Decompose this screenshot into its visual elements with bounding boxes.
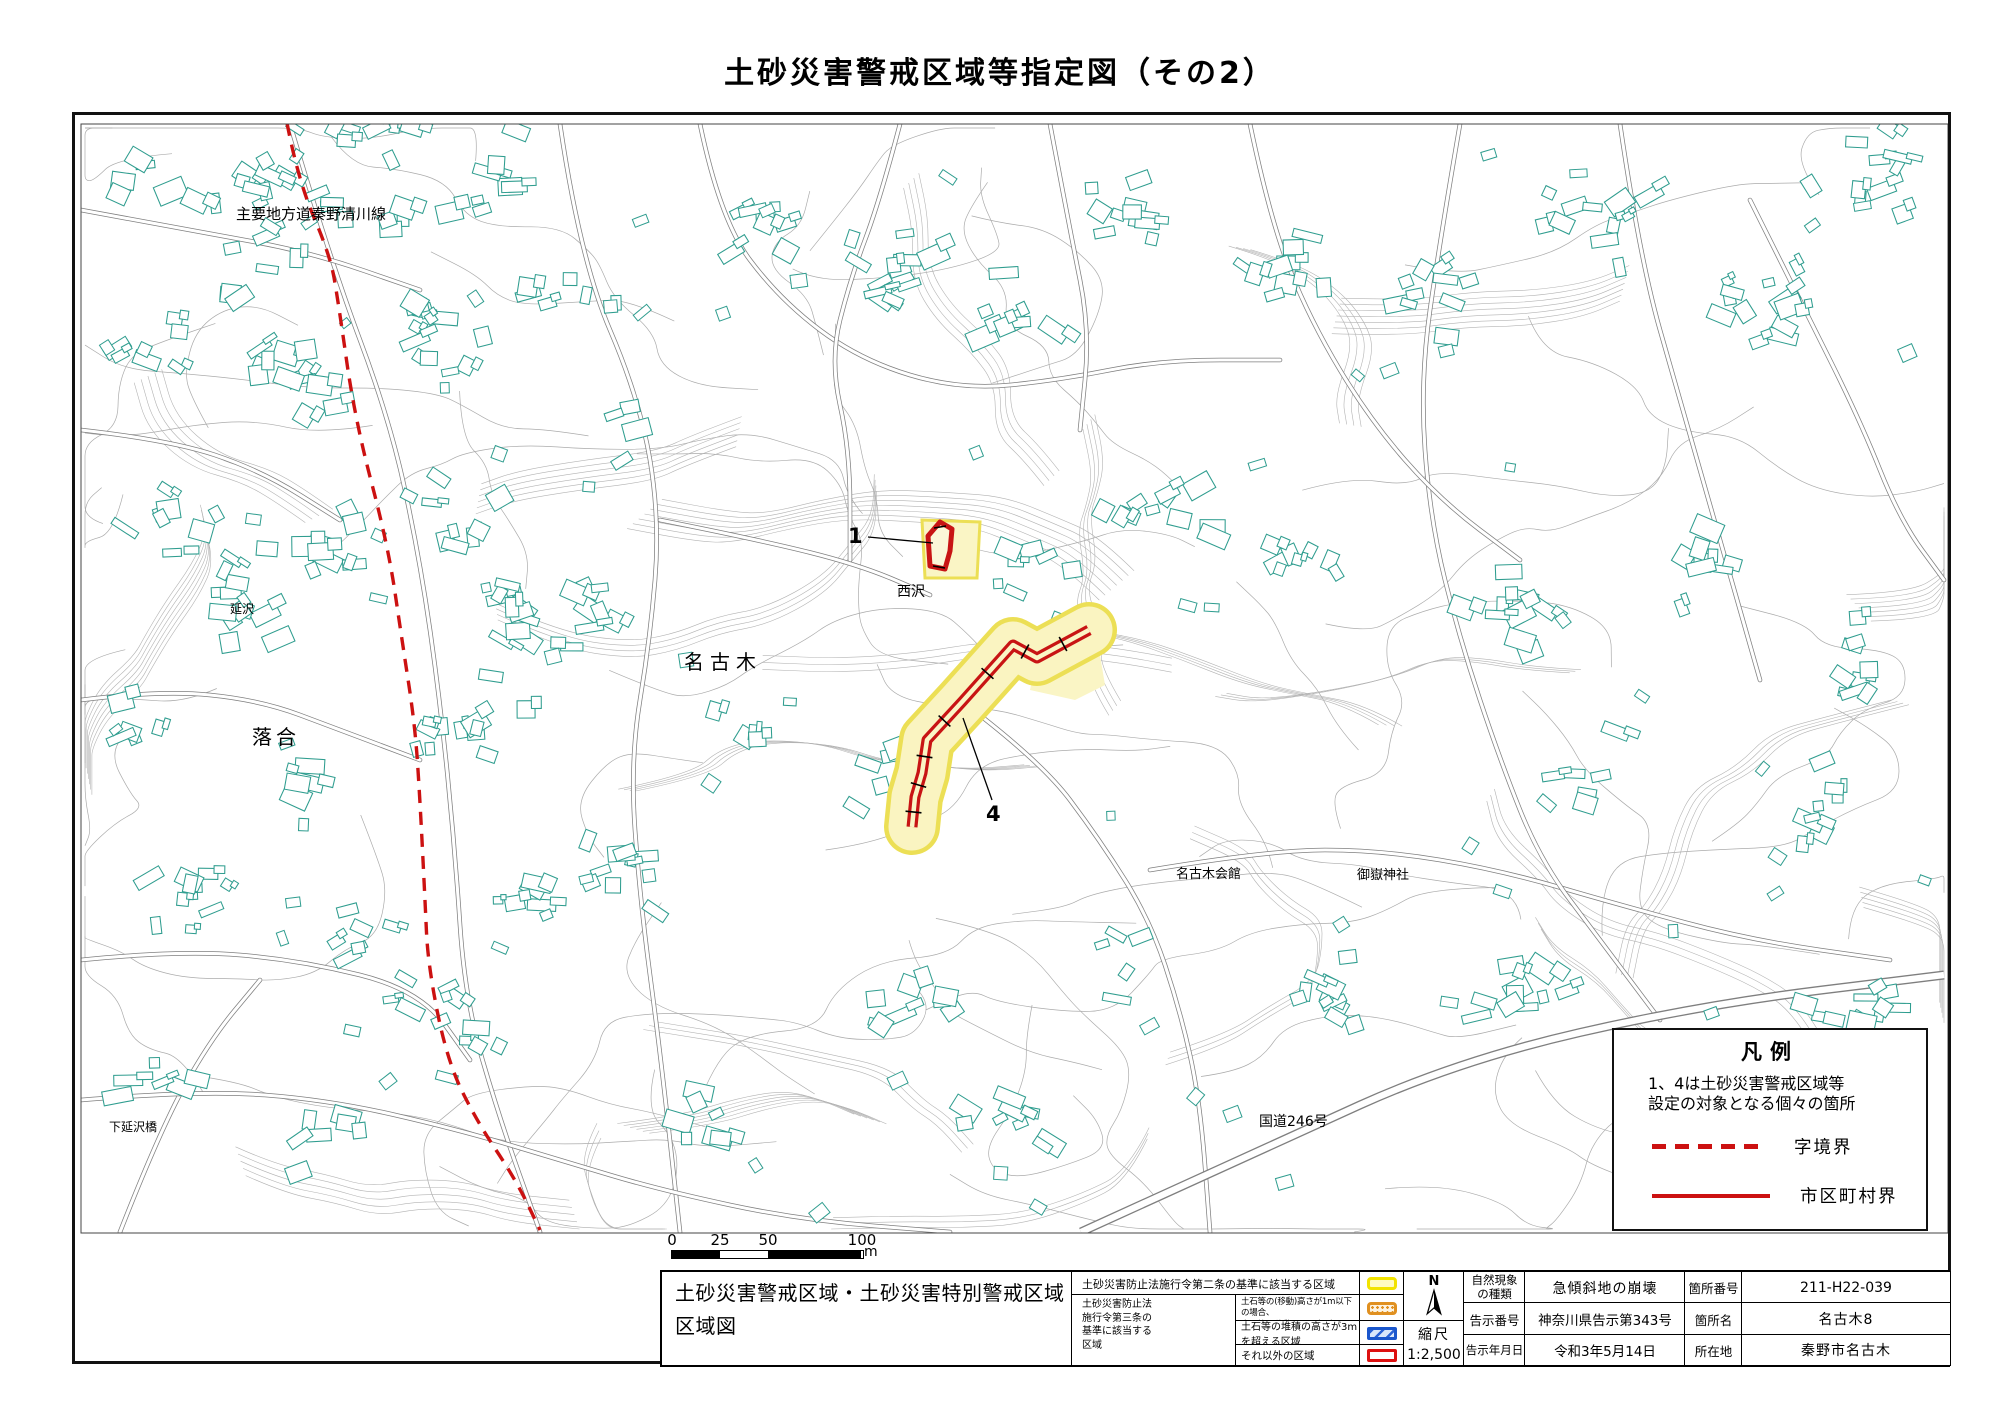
scale-label: 縮尺: [1418, 1324, 1450, 1344]
legend-note-line2: 設定の対象となる個々の箇所: [1648, 1094, 1926, 1114]
page: 土砂災害警戒区域等指定図（その2） 主要地方道秦野清川線 延沢 落合 名古木 西…: [0, 0, 2000, 1414]
zone-legend-row4: それ以外の区域: [1235, 1344, 1361, 1366]
info-table: 土砂災害警戒区域・土砂災害特別警戒区域 区域図 土砂災害防止法施行令第二条の基準…: [660, 1270, 1950, 1367]
scalebar-segment: [672, 1251, 720, 1258]
map-label-ochiai: 落合: [252, 721, 300, 750]
map-label-naganuki-kaikan: 名古木会館: [1176, 863, 1241, 882]
blue-hatched-zone-swatch: [1367, 1327, 1397, 1340]
scalebar: [671, 1250, 864, 1259]
map-label-mitake-jinja: 御嶽神社: [1357, 864, 1409, 883]
group-label-line: 区域: [1082, 1339, 1152, 1353]
detail-label: 告示年月日: [1463, 1334, 1526, 1366]
zone-legend-group-label: 土砂災害防止法 施行令第三条の 基準に該当する 区域: [1071, 1294, 1236, 1366]
detail-label: 告示番号: [1463, 1302, 1526, 1336]
info-doc-title-line2: 区域図: [675, 1313, 737, 1339]
north-label: N: [1429, 1275, 1440, 1288]
detail-label: 所在地: [1684, 1334, 1743, 1366]
map-margin-mask: [0, 0, 81, 1414]
map-label-nobesawa: 延沢: [230, 600, 254, 617]
legend-solid-line-sample: [1652, 1194, 1770, 1198]
map-label-shimonobesawabashi: 下延沢橋: [109, 1118, 157, 1135]
detail-value: 神奈川県告示第343号: [1524, 1302, 1686, 1336]
detail-label: 自然現象の種類: [1463, 1271, 1526, 1304]
scalebar-tick-0: 0: [667, 1231, 677, 1249]
scalebar-unit: m: [864, 1244, 878, 1260]
scale-cell: 縮尺 1:2,500: [1403, 1320, 1465, 1366]
red-outline-zone-swatch: [1367, 1349, 1397, 1362]
legend-item-aza-boundary: 字境界: [1652, 1134, 1926, 1159]
scalebar-tick-50: 50: [758, 1231, 777, 1249]
detail-value: 211-H22-039: [1741, 1271, 1951, 1304]
zone-marker-4: 4: [986, 802, 1001, 826]
zone-legend-row2-line1: 土石等の(移動)高さが1m以下の場合、: [1241, 1297, 1360, 1320]
map-margin-mask: [1948, 0, 2000, 1414]
map-label-naganuki: 名古木: [684, 646, 762, 675]
detail-value: 名古木8: [1741, 1302, 1951, 1336]
yellow-zone-swatch: [1367, 1277, 1397, 1290]
legend-item-municipal-boundary: 市区町村界: [1652, 1183, 1926, 1208]
swatch-cell-orange: [1359, 1294, 1405, 1322]
scalebar-segment: [768, 1251, 861, 1258]
group-label-line: 基準に該当する: [1082, 1325, 1152, 1339]
legend-title: 凡例: [1614, 1036, 1926, 1066]
map-label-prefroad: 主要地方道秦野清川線: [236, 203, 386, 224]
legend-item-label: 市区町村界: [1800, 1183, 1898, 1208]
group-label-line: 施行令第三条の: [1082, 1312, 1152, 1326]
zone-legend-row1: 土砂災害防止法施行令第二条の基準に該当する区域: [1071, 1271, 1361, 1296]
page-title: 土砂災害警戒区域等指定図（その2）: [0, 48, 2000, 92]
map-label-route246: 国道246号: [1259, 1111, 1328, 1131]
detail-value: 秦野市名古木: [1741, 1334, 1951, 1366]
scalebar-segment: [720, 1251, 768, 1258]
zone-legend-row2: 土石等の(移動)高さが1m以下の場合、 土石等の移動による力が100kN/m²を…: [1235, 1294, 1361, 1322]
orange-dotted-zone-swatch: [1367, 1302, 1397, 1315]
info-doc-title-cell: 土砂災害警戒区域・土砂災害特別警戒区域 区域図: [662, 1272, 1072, 1365]
north-arrow-icon: [1425, 1288, 1443, 1318]
compass-cell: N: [1403, 1271, 1465, 1322]
legend-note-line1: 1、4は土砂災害警戒区域等: [1648, 1074, 1926, 1094]
zone-legend-row3: 土石等の堆積の高さが3mを超える区域: [1235, 1320, 1361, 1346]
swatch-cell-red: [1359, 1344, 1405, 1366]
legend-box: 凡例 1、4は土砂災害警戒区域等 設定の対象となる個々の箇所 字境界 市区町村界: [1612, 1028, 1928, 1231]
scalebar-tick-25: 25: [710, 1231, 729, 1249]
swatch-cell-yellow: [1359, 1271, 1405, 1296]
detail-value: 急傾斜地の崩壊: [1524, 1271, 1686, 1304]
detail-label: 箇所名: [1684, 1302, 1743, 1336]
map-label-nishisawa: 西沢: [897, 581, 925, 601]
scale-value: 1:2,500: [1407, 1347, 1461, 1363]
info-doc-title-line1: 土砂災害警戒区域・土砂災害特別警戒区域: [675, 1280, 1065, 1306]
legend-item-label: 字境界: [1794, 1134, 1853, 1159]
detail-value: 令和3年5月14日: [1524, 1334, 1686, 1366]
detail-label: 箇所番号: [1684, 1271, 1743, 1304]
group-label-line: 土砂災害防止法: [1082, 1298, 1152, 1312]
swatch-cell-blue: [1359, 1320, 1405, 1346]
legend-dashed-line-sample: [1652, 1144, 1764, 1149]
zone-marker-1: 1: [848, 524, 863, 548]
